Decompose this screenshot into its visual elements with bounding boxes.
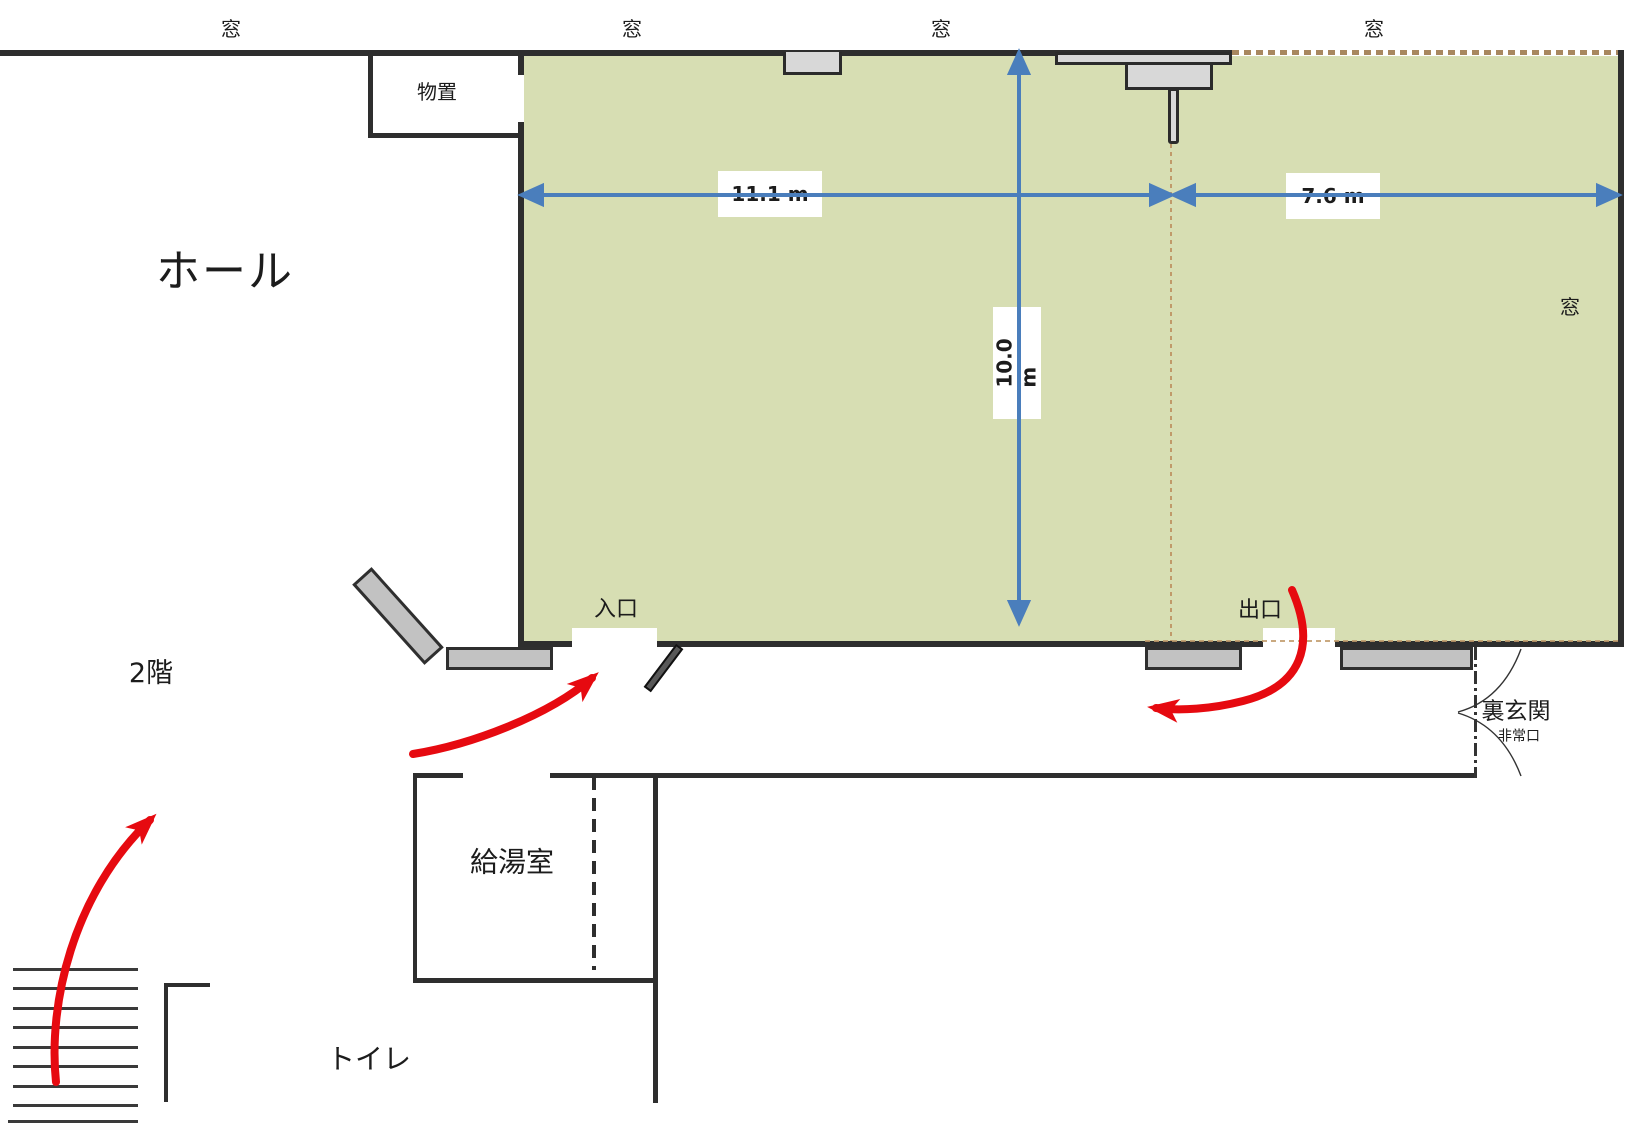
screen-box bbox=[1125, 62, 1213, 90]
kitchenette-partition-dashed bbox=[592, 777, 596, 970]
top-wall-window-dashed bbox=[1232, 50, 1618, 55]
entrance-opening bbox=[572, 628, 657, 647]
corridor-bottom-wall-left bbox=[413, 773, 463, 778]
entrance-label: 入口 bbox=[594, 598, 638, 622]
dimension-label-11-1m: 11.1 m bbox=[718, 171, 822, 217]
stair-tread bbox=[13, 1026, 138, 1029]
second-floor-label: 2階 bbox=[129, 659, 173, 689]
exit-opening bbox=[1263, 628, 1335, 647]
dimension-value: 11.1 m bbox=[731, 182, 808, 206]
storage-door-gap bbox=[518, 75, 524, 122]
exit-bench-left bbox=[1145, 647, 1242, 670]
kitchenette-left-wall bbox=[413, 773, 417, 983]
emergency-exit-label: 非常口 bbox=[1498, 729, 1540, 744]
bottom-wall-window-ticks bbox=[1145, 640, 1618, 642]
toilet-wall-stub bbox=[164, 983, 210, 987]
dimension-label-7-6m: 7.6 m bbox=[1286, 173, 1380, 219]
reception-table-angled bbox=[352, 567, 444, 665]
dimension-label-10-0m: 10.0 m bbox=[993, 307, 1041, 419]
wall-niche bbox=[783, 52, 842, 75]
toilet-label: トイレ bbox=[327, 1045, 411, 1076]
back-entrance-label: 裏玄関 bbox=[1482, 699, 1551, 724]
kitchenette-bottom-wall bbox=[413, 978, 658, 983]
stair-tread bbox=[13, 968, 138, 971]
top-wall bbox=[0, 50, 1232, 56]
toilet-wall-vertical bbox=[164, 983, 168, 1102]
hall-left-wall bbox=[518, 50, 524, 647]
screen-pole bbox=[1168, 88, 1179, 144]
stair-tread bbox=[13, 1007, 138, 1010]
stair-tread bbox=[13, 987, 138, 990]
window-label-top-2: 窓 bbox=[622, 18, 642, 40]
kitchenette-label: 給湯室 bbox=[470, 848, 554, 879]
window-label-top-1: 窓 bbox=[221, 18, 241, 40]
stair-tread bbox=[13, 1046, 138, 1049]
back-door-line bbox=[1474, 647, 1477, 778]
hall-label: ホール bbox=[156, 248, 294, 296]
exit-bench-right bbox=[1340, 647, 1473, 670]
window-label-top-3: 窓 bbox=[931, 18, 951, 40]
corridor-bottom-wall-right bbox=[550, 773, 1476, 778]
window-label-top-4: 窓 bbox=[1364, 18, 1384, 40]
dimension-value: 7.6 m bbox=[1301, 184, 1364, 208]
stairs-flow-arrow bbox=[55, 820, 150, 1082]
hall-room-fill bbox=[524, 56, 1618, 641]
entrance-bench bbox=[446, 647, 553, 670]
window-label-right: 窓 bbox=[1560, 296, 1580, 318]
stair-tread bbox=[8, 1120, 138, 1123]
stair-tread bbox=[13, 1085, 138, 1088]
floor-plan: 11.1 m 7.6 m 10.0 m 窓 窓 窓 窓 窓 物置 ホール 2階 … bbox=[0, 0, 1625, 1125]
hall-right-wall bbox=[1618, 50, 1624, 647]
stair-tread bbox=[13, 1104, 138, 1107]
screen-center-guide-dashed bbox=[1170, 144, 1172, 641]
exit-label: 出口 bbox=[1238, 599, 1282, 623]
entrance-flow-arrow bbox=[413, 678, 592, 754]
storage-room-label: 物置 bbox=[417, 81, 457, 103]
stair-tread bbox=[13, 1065, 138, 1068]
storage-left-wall bbox=[368, 50, 373, 138]
storage-bottom-wall bbox=[368, 133, 524, 138]
flow-arrows bbox=[55, 590, 1304, 1082]
dimension-value: 10.0 m bbox=[993, 338, 1041, 387]
kitchenette-right-wall bbox=[653, 773, 658, 1103]
entrance-door-leaf bbox=[644, 644, 684, 693]
